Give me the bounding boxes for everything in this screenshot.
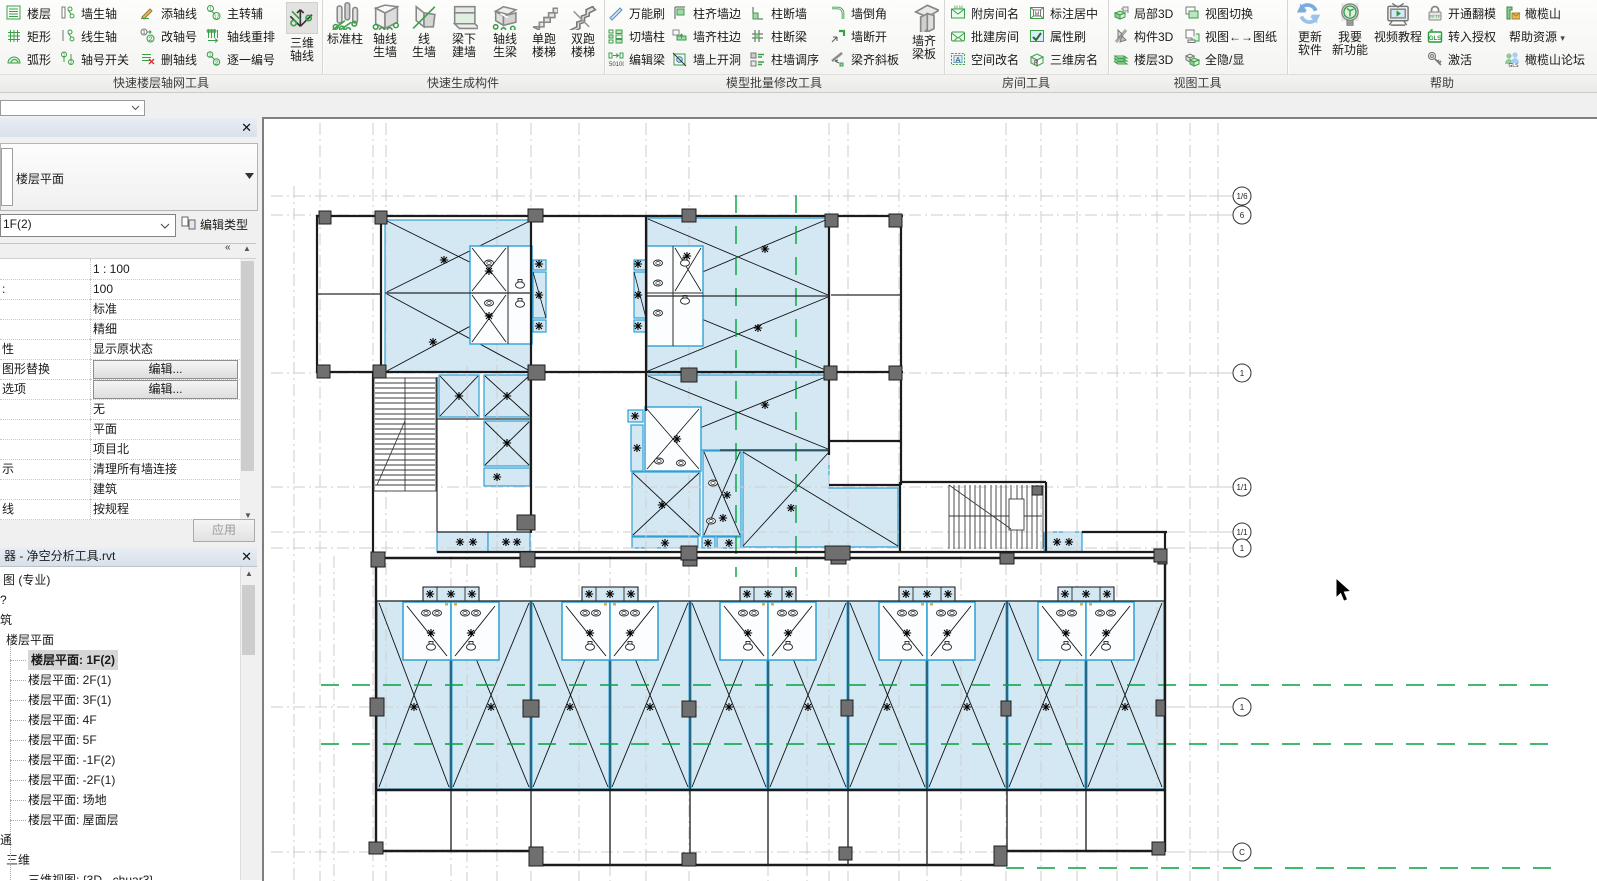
- svg-text:1: 1: [1240, 544, 1245, 553]
- svg-text:6: 6: [1240, 211, 1245, 220]
- svg-text:1: 1: [1240, 703, 1245, 712]
- svg-text:C: C: [1239, 848, 1245, 857]
- svg-text:1/1: 1/1: [1236, 528, 1248, 537]
- svg-text:1/6: 1/6: [1236, 192, 1248, 201]
- svg-text:1: 1: [1240, 369, 1245, 378]
- svg-text:1/1: 1/1: [1236, 483, 1248, 492]
